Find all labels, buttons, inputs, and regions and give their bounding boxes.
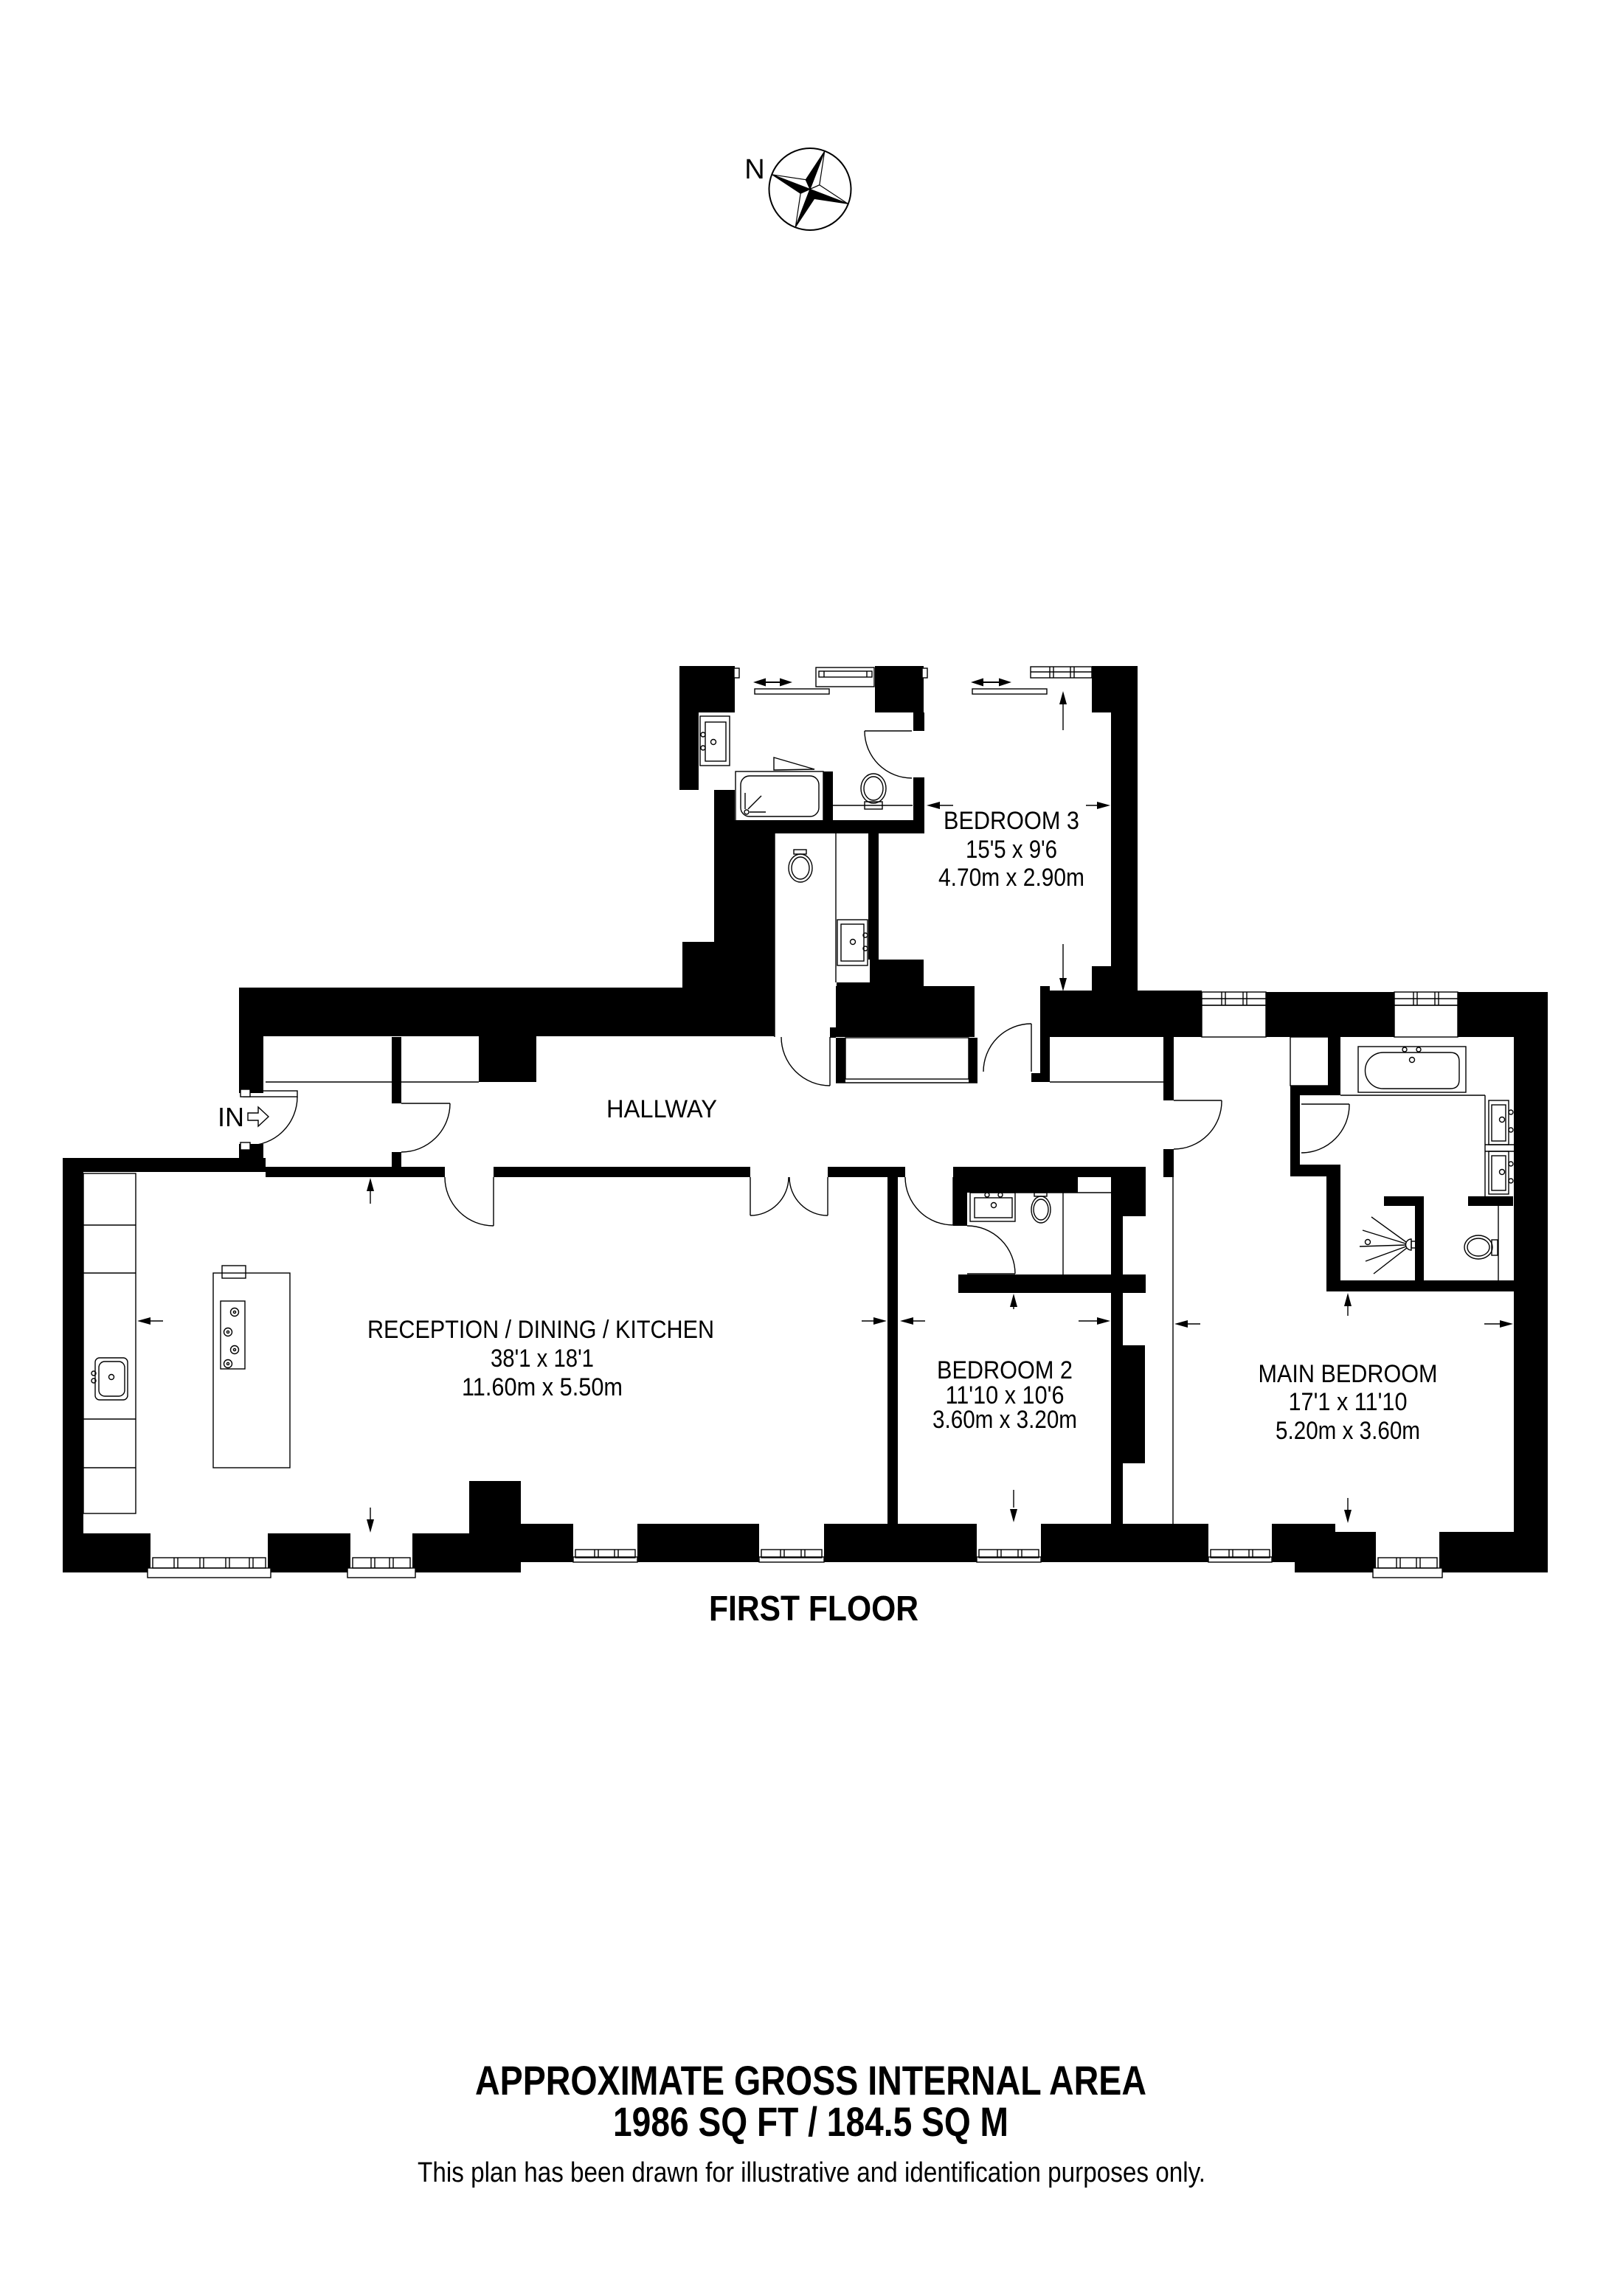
svg-text:HALLWAY: HALLWAY [606,1095,717,1123]
svg-text:15'5 x 9'6: 15'5 x 9'6 [966,836,1057,864]
svg-text:4.70m x 2.90m: 4.70m x 2.90m [938,864,1084,892]
svg-text:1986 SQ FT / 184.5 SQ M: 1986 SQ FT / 184.5 SQ M [613,2098,1008,2145]
svg-text:3.60m x 3.20m: 3.60m x 3.20m [932,1406,1077,1434]
svg-text:This plan has been drawn for i: This plan has been drawn for illustrativ… [418,2157,1205,2188]
svg-text:RECEPTION / DINING / KITCHEN: RECEPTION / DINING / KITCHEN [367,1316,714,1344]
svg-text:MAIN BEDROOM: MAIN BEDROOM [1259,1360,1438,1388]
svg-text:BEDROOM 2: BEDROOM 2 [937,1356,1073,1384]
svg-text:APPROXIMATE GROSS INTERNAL ARE: APPROXIMATE GROSS INTERNAL AREA [475,2057,1146,2103]
svg-text:5.20m x 3.60m: 5.20m x 3.60m [1276,1417,1420,1445]
svg-text:N: N [744,154,764,185]
svg-text:17'1 x 11'10: 17'1 x 11'10 [1289,1388,1408,1416]
svg-text:BEDROOM 3: BEDROOM 3 [944,807,1079,835]
svg-text:FIRST FLOOR: FIRST FLOOR [709,1589,918,1629]
svg-text:38'1 x 18'1: 38'1 x 18'1 [491,1345,594,1373]
svg-text:IN: IN [218,1102,244,1132]
svg-text:11.60m x 5.50m: 11.60m x 5.50m [462,1373,623,1401]
